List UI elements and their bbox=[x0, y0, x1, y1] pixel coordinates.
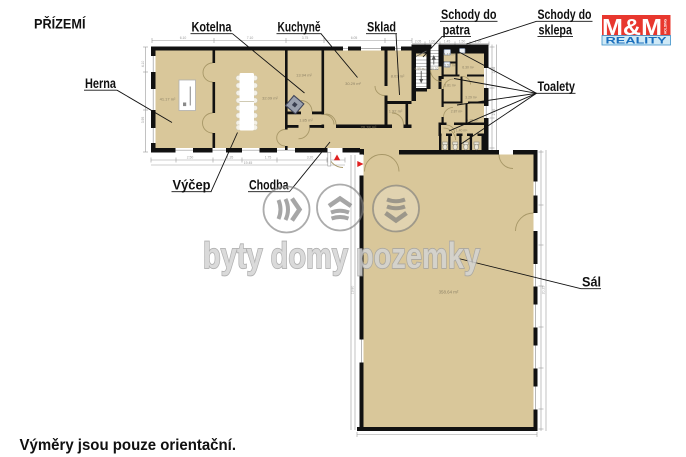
svg-text:1.85 m²: 1.85 m² bbox=[299, 118, 313, 123]
svg-text:10.32: 10.32 bbox=[431, 67, 439, 71]
svg-text:6.05: 6.05 bbox=[351, 36, 358, 40]
svg-text:Sál: Sál bbox=[582, 275, 601, 290]
svg-text:Kuchyně: Kuchyně bbox=[278, 20, 321, 35]
svg-text:13.94 m²: 13.94 m² bbox=[296, 73, 312, 78]
svg-text:3.29 m²: 3.29 m² bbox=[465, 96, 477, 100]
svg-text:3.95: 3.95 bbox=[141, 117, 145, 124]
svg-text:Sklad: Sklad bbox=[367, 20, 396, 35]
svg-text:2.05: 2.05 bbox=[415, 39, 422, 43]
svg-text:Výčep: Výčep bbox=[173, 178, 211, 193]
svg-text:Toalety: Toalety bbox=[538, 79, 576, 94]
svg-text:sklepa: sklepa bbox=[539, 22, 573, 37]
svg-text:HOLDING: HOLDING bbox=[664, 18, 668, 34]
svg-text:30.29 m²: 30.29 m² bbox=[345, 81, 361, 86]
svg-text:20.25: 20.25 bbox=[542, 286, 546, 295]
svg-text:41.17 m²: 41.17 m² bbox=[160, 97, 176, 102]
svg-text:1.75: 1.75 bbox=[265, 156, 272, 160]
svg-text:Výměry jsou pouze orientační.: Výměry jsou pouze orientační. bbox=[20, 437, 237, 454]
svg-text:4.10: 4.10 bbox=[141, 61, 145, 68]
svg-text:20.18 m²: 20.18 m² bbox=[361, 125, 377, 130]
svg-text:19.80: 19.80 bbox=[350, 286, 354, 295]
svg-text:REALITY: REALITY bbox=[606, 35, 668, 46]
svg-text:PŘÍZEMÍ: PŘÍZEMÍ bbox=[34, 15, 87, 32]
svg-text:19.45: 19.45 bbox=[244, 161, 253, 165]
svg-text:Kotelna: Kotelna bbox=[192, 20, 232, 35]
svg-text:1.92 m²: 1.92 m² bbox=[389, 109, 403, 114]
svg-text:3.20: 3.20 bbox=[307, 156, 314, 160]
svg-text:1.45: 1.45 bbox=[444, 39, 451, 43]
svg-text:3.75: 3.75 bbox=[302, 36, 309, 40]
svg-text:Schody do: Schody do bbox=[538, 7, 592, 22]
svg-text:1.17 m²: 1.17 m² bbox=[444, 53, 456, 57]
svg-text:Herna: Herna bbox=[85, 76, 116, 91]
svg-text:6.59 m²: 6.59 m² bbox=[415, 67, 426, 71]
svg-text:6.10: 6.10 bbox=[180, 36, 187, 40]
svg-text:32.09 m²: 32.09 m² bbox=[262, 96, 278, 101]
svg-text:1.00: 1.00 bbox=[429, 39, 436, 43]
svg-text:1.50: 1.50 bbox=[459, 39, 466, 43]
svg-text:1.35: 1.35 bbox=[227, 156, 234, 160]
svg-text:patra: patra bbox=[443, 22, 471, 37]
svg-text:7.10: 7.10 bbox=[247, 36, 254, 40]
svg-text:2.87 m²: 2.87 m² bbox=[451, 110, 463, 114]
svg-text:6.30 m²: 6.30 m² bbox=[462, 66, 474, 70]
svg-text:byty domy pozemky: byty domy pozemky bbox=[203, 235, 480, 276]
svg-text:Schody do: Schody do bbox=[441, 7, 497, 22]
svg-text:5.81 m²: 5.81 m² bbox=[444, 84, 456, 88]
svg-text:2.50: 2.50 bbox=[187, 156, 194, 160]
svg-text:358.64 m²: 358.64 m² bbox=[439, 290, 459, 295]
svg-text:8.03 m²: 8.03 m² bbox=[391, 74, 405, 79]
svg-text:1.57 m²: 1.57 m² bbox=[444, 64, 456, 68]
svg-text:1.40 m²: 1.40 m² bbox=[456, 129, 468, 133]
